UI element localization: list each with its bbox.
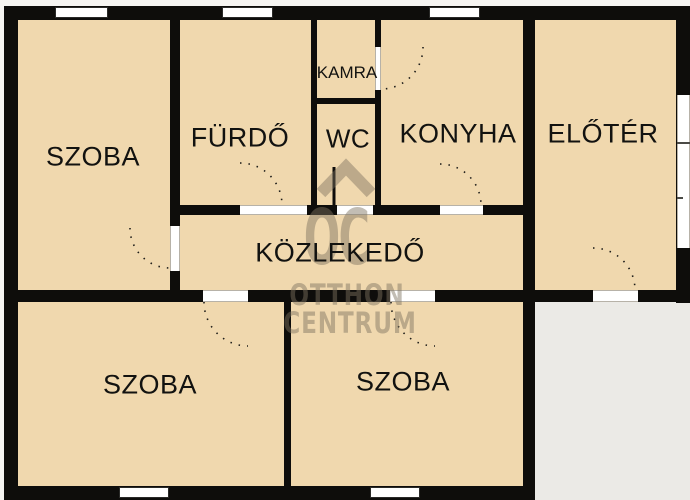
watermark-line2: CENTRUM <box>283 306 417 340</box>
room-label-szoba-bottom-left: SZOBA <box>103 370 197 401</box>
room-label-eloter: ELŐTÉR <box>547 119 658 150</box>
room-label-kozlekedo: KÖZLEKEDŐ <box>255 238 425 269</box>
room-label-furdo: FÜRDŐ <box>191 123 290 154</box>
room-label-konyha: KONYHA <box>399 119 516 150</box>
room-label-szoba-top-left: SZOBA <box>46 142 140 173</box>
room-label-szoba-bottom-middle: SZOBA <box>356 367 450 398</box>
room-label-wc: WC <box>326 124 370 155</box>
floorplan-canvas: OC OTTHON CENTRUM SZOBA FÜRDŐ KAMRA WC K… <box>0 0 690 500</box>
room-label-kamra: KAMRA <box>317 63 377 83</box>
